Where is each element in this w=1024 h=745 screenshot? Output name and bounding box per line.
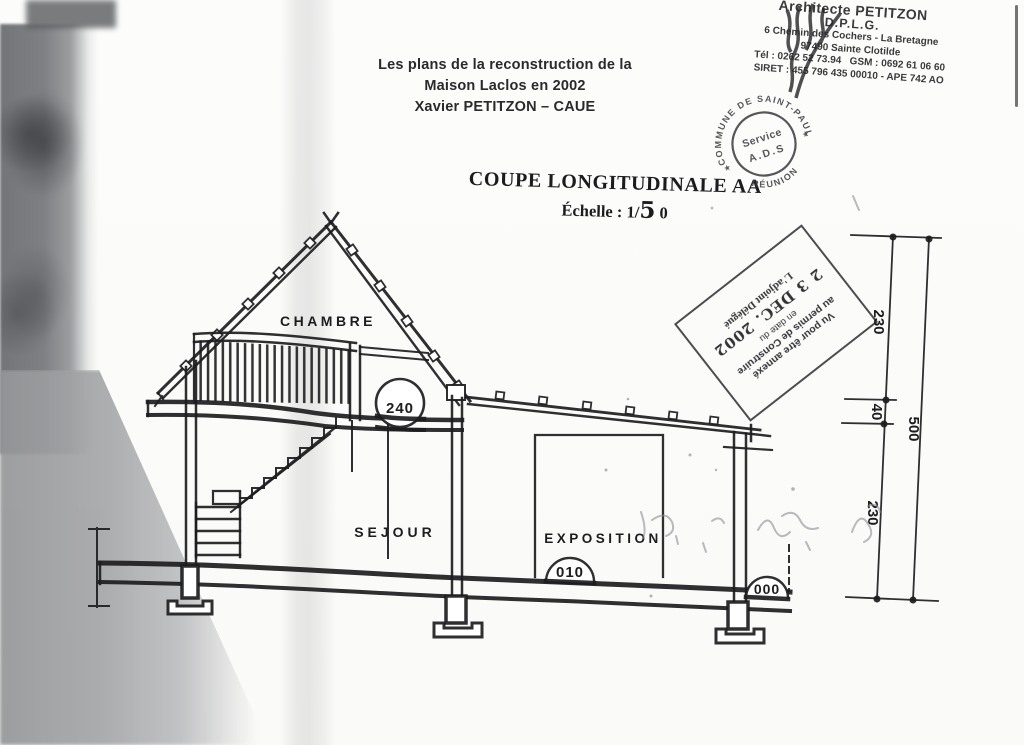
middle-footing-stem bbox=[446, 596, 466, 623]
stair-landing-box bbox=[213, 491, 240, 504]
level-010-text: 010 bbox=[556, 564, 584, 581]
lower-stair-sides bbox=[196, 492, 240, 557]
stair-steps bbox=[240, 418, 336, 498]
left-footing-stem bbox=[182, 566, 198, 598]
stair-stringer2 bbox=[231, 434, 330, 512]
dimension-lines: 230 40 230 500 bbox=[842, 234, 941, 604]
dim-40: 40 bbox=[868, 404, 885, 421]
lower-stair-treads bbox=[196, 507, 240, 555]
ridge-tips bbox=[324, 213, 338, 223]
right-wall bbox=[734, 432, 746, 604]
balusters bbox=[197, 340, 352, 404]
level-240-text: 240 bbox=[386, 400, 414, 417]
level-markers: 240 010 000 bbox=[376, 379, 788, 599]
name-redaction-scribble bbox=[787, 4, 840, 98]
dim-230-upper: 230 bbox=[870, 309, 887, 334]
scanned-plan-page: Architecte PETITZON D.P.L.G. 6 Chemin de… bbox=[0, 0, 1024, 745]
left-footing-pad bbox=[168, 601, 212, 614]
middle-wall bbox=[452, 396, 462, 598]
middle-footing-pad bbox=[434, 623, 482, 637]
right-footing-stem bbox=[728, 602, 748, 629]
right-footing-pad bbox=[716, 629, 764, 643]
level-000-text: 000 bbox=[754, 581, 780, 597]
right-wall-plate bbox=[724, 447, 772, 450]
shed-roof-bottom bbox=[468, 404, 770, 436]
slab-top bbox=[100, 563, 790, 592]
room-label-sejour: SEJOUR bbox=[354, 524, 436, 540]
exposition-case bbox=[535, 435, 663, 577]
room-label-chambre: CHAMBRE bbox=[280, 313, 376, 329]
section-drawing: 240 010 000 CHAMBRE SEJOUR EXPOSITION 23… bbox=[0, 0, 1024, 745]
dim-500-total: 500 bbox=[905, 416, 922, 441]
